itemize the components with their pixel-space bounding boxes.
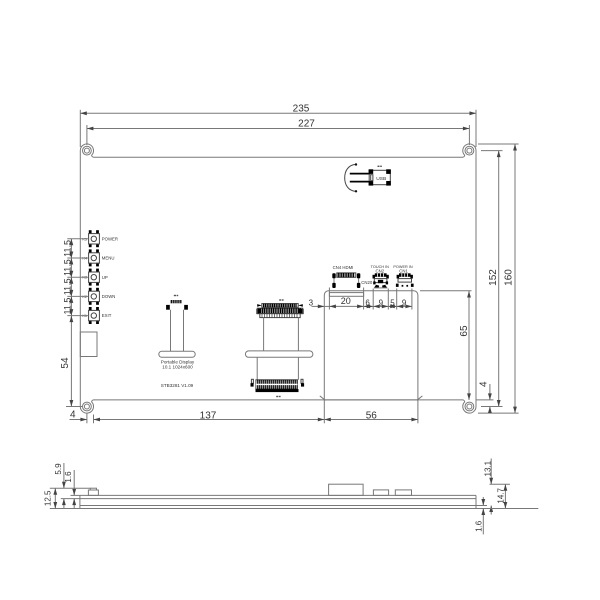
svg-text:11.5: 11.5	[63, 298, 73, 315]
svg-text:11.5: 11.5	[63, 240, 73, 257]
svg-text:3: 3	[309, 298, 314, 307]
svg-text:9: 9	[379, 298, 384, 307]
svg-text:9: 9	[402, 298, 407, 307]
svg-text:1.6: 1.6	[474, 520, 483, 532]
svg-text:MENU: MENU	[102, 256, 115, 261]
svg-text:CN4 HDMI: CN4 HDMI	[333, 265, 354, 270]
svg-text:11.5: 11.5	[63, 278, 73, 295]
svg-text:20: 20	[341, 296, 351, 306]
svg-text:EXIT: EXIT	[102, 313, 112, 318]
svg-text:CN1: CN1	[399, 268, 408, 273]
svg-text:14.7: 14.7	[496, 487, 505, 503]
svg-text:POWER: POWER	[102, 236, 118, 241]
svg-text:6: 6	[365, 298, 370, 307]
svg-text:10.1 1024x600: 10.1 1024x600	[162, 364, 193, 369]
svg-text:54: 54	[60, 357, 71, 369]
svg-text:137: 137	[200, 411, 217, 422]
svg-text:DOWN: DOWN	[102, 294, 116, 299]
svg-text:160: 160	[503, 269, 514, 286]
svg-text:12.5: 12.5	[43, 490, 52, 506]
svg-text:4: 4	[479, 381, 490, 387]
svg-text:56: 56	[366, 410, 378, 421]
svg-text:1.6: 1.6	[64, 471, 73, 483]
svg-text:CN2: CN2	[375, 268, 384, 273]
svg-text:13.1: 13.1	[483, 460, 492, 476]
svg-text:5.9: 5.9	[54, 463, 63, 475]
svg-text:227: 227	[298, 119, 315, 130]
svg-text:152: 152	[488, 269, 499, 286]
svg-text:STB3281 V1.09: STB3281 V1.09	[161, 383, 194, 388]
svg-text:5: 5	[390, 298, 395, 307]
svg-text:4: 4	[70, 410, 76, 421]
svg-text:UP: UP	[102, 275, 108, 280]
svg-text:USB: USB	[376, 176, 386, 182]
svg-text:235: 235	[293, 103, 310, 114]
svg-text:CN20: CN20	[361, 280, 373, 285]
svg-text:65: 65	[459, 325, 470, 337]
svg-text:11.5: 11.5	[63, 259, 73, 276]
